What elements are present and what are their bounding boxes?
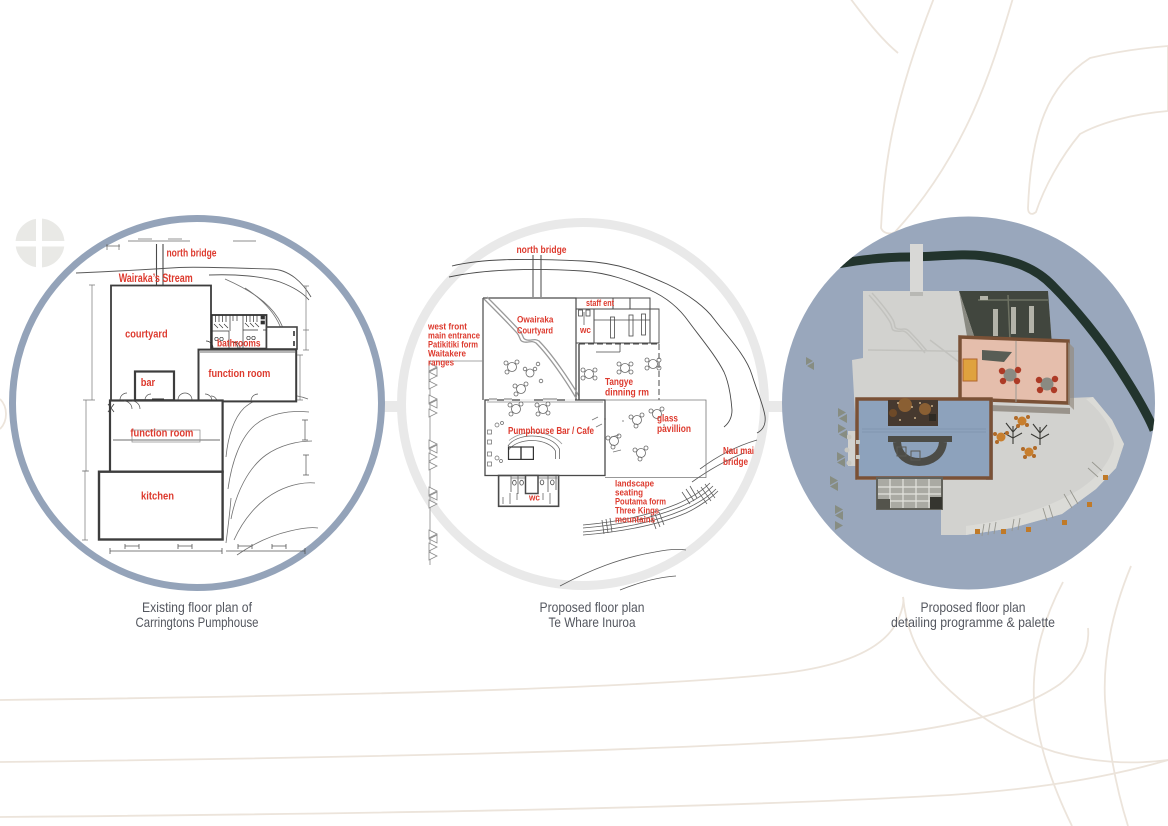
svg-text:Carringtons Pumphouse: Carringtons Pumphouse <box>136 614 259 630</box>
svg-text:bar: bar <box>141 377 156 389</box>
svg-text:Nau mai: Nau mai <box>723 446 754 457</box>
svg-text:wc: wc <box>579 325 591 335</box>
svg-text:glass: glass <box>657 414 678 425</box>
svg-text:Te Whare Inuroa: Te Whare Inuroa <box>549 614 636 630</box>
svg-text:Proposed floor plan: Proposed floor plan <box>540 599 645 615</box>
svg-text:Owairaka: Owairaka <box>517 315 554 326</box>
svg-text:function room: function room <box>130 428 193 440</box>
svg-text:Tangye: Tangye <box>605 377 633 388</box>
svg-text:north bridge: north bridge <box>517 244 567 256</box>
svg-text:function room: function room <box>208 368 270 380</box>
svg-text:detailing programme & palette: detailing programme & palette <box>891 614 1055 630</box>
svg-text:staff ent: staff ent <box>586 298 614 308</box>
svg-text:Pumphouse Bar / Cafe: Pumphouse Bar / Cafe <box>508 425 594 437</box>
svg-text:Courtyard: Courtyard <box>517 326 553 337</box>
svg-text:Existing floor plan of: Existing floor plan of <box>142 599 252 615</box>
svg-text:courtyard: courtyard <box>125 329 168 341</box>
svg-text:pavillion: pavillion <box>657 424 691 435</box>
svg-text:Wairaka’s Stream: Wairaka’s Stream <box>119 271 193 285</box>
svg-text:bathrooms: bathrooms <box>217 338 261 349</box>
svg-text:wc: wc <box>528 493 540 503</box>
svg-text:ranges: ranges <box>428 358 454 369</box>
svg-text:Proposed floor plan: Proposed floor plan <box>921 599 1026 615</box>
svg-text:north bridge: north bridge <box>167 247 217 259</box>
svg-text:kitchen: kitchen <box>141 491 174 503</box>
svg-text:dinning rm: dinning rm <box>605 388 649 399</box>
svg-text:bridge: bridge <box>723 457 748 468</box>
svg-text:mountains: mountains <box>615 515 655 526</box>
